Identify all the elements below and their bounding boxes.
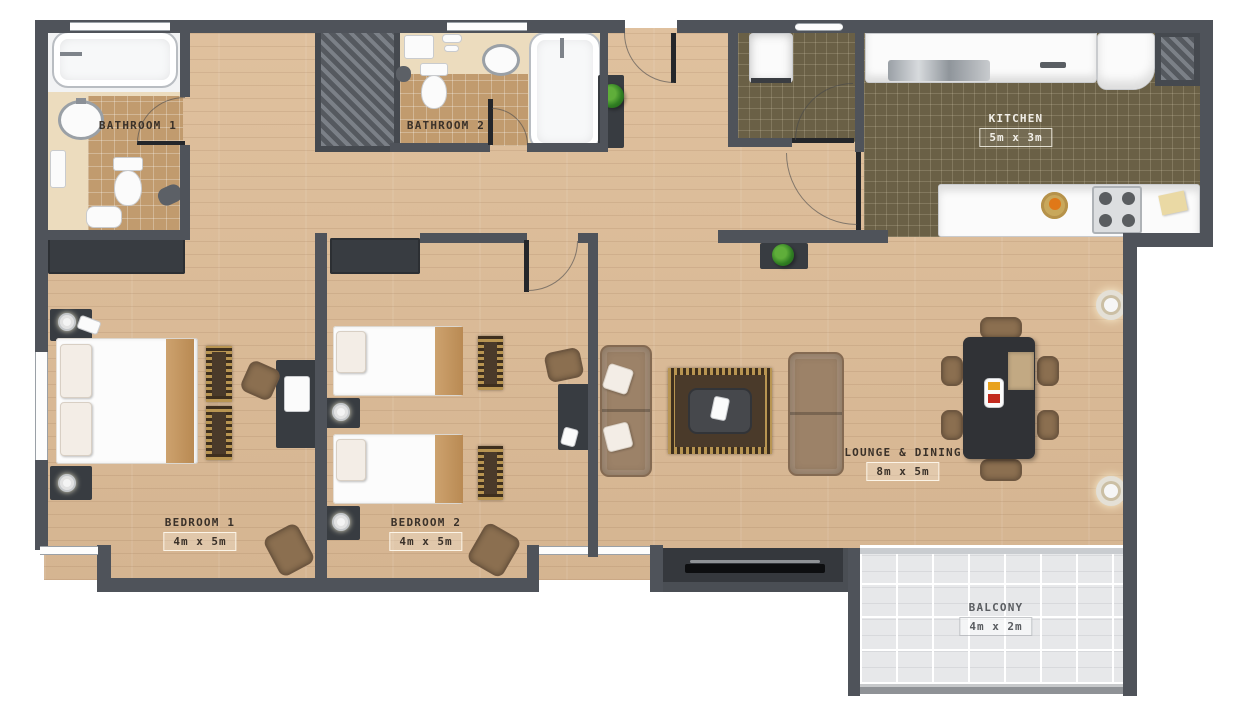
- wall: [420, 233, 527, 243]
- wall: [97, 578, 539, 592]
- wall: [180, 145, 190, 240]
- window: [70, 22, 170, 31]
- burner-4: [1122, 214, 1135, 227]
- wall: [588, 233, 598, 557]
- wall: [527, 143, 607, 152]
- food-item-b: [988, 394, 1000, 403]
- wall: [35, 20, 48, 550]
- closet-hatched: [315, 26, 400, 152]
- rug-1b: [206, 406, 232, 460]
- balcony-label: BALCONY: [969, 601, 1024, 614]
- rug-1a: [206, 346, 232, 402]
- wall: [718, 230, 888, 243]
- dining-chair-bottom: [980, 459, 1022, 481]
- tv-stand: [690, 560, 820, 563]
- window: [447, 22, 527, 31]
- wall: [527, 545, 539, 592]
- toilet-1-bowl: [114, 170, 142, 206]
- dining-chair-right-a: [1037, 356, 1059, 386]
- toilet-2-bowl: [421, 75, 447, 109]
- floor-plan: BATHROOM 1 BATHROOM 2 KITCHEN 5m x 3m: [0, 0, 1250, 720]
- balcony-sliding-door: [860, 545, 1123, 554]
- bathtub-1: [52, 31, 178, 88]
- food-item-a: [988, 382, 1000, 390]
- towel-roll-1: [442, 34, 462, 43]
- pillow-1a: [60, 344, 92, 398]
- sink-1: [58, 100, 104, 140]
- lamp-2b: [332, 513, 350, 531]
- bed-runner-2a: [435, 327, 463, 395]
- dining-chair-top: [980, 317, 1022, 339]
- bathtub-2: [529, 32, 601, 151]
- towel-dark-2: [396, 66, 411, 82]
- lounge-label: LOUNGE & DINING: [844, 446, 961, 459]
- balcony-dims: 4m x 2m: [959, 617, 1032, 636]
- wall: [650, 545, 663, 592]
- window: [539, 546, 588, 555]
- sofa-left-seam: [602, 409, 650, 412]
- wall: [35, 230, 190, 240]
- counter-handle: [1040, 62, 1066, 68]
- wall: [1200, 20, 1213, 247]
- lamp-1b: [58, 474, 76, 492]
- pillow-1b: [60, 402, 92, 456]
- kitchen-sink: [888, 60, 990, 81]
- bathtub-1-faucet: [60, 52, 82, 56]
- service-shaft-hatched: [1155, 31, 1200, 86]
- sofa-right-seam: [790, 412, 842, 415]
- bathroom1-shelf: [50, 150, 66, 188]
- wall-light-a: [1096, 290, 1126, 320]
- wall: [855, 28, 864, 152]
- wall: [390, 143, 490, 152]
- wardrobe-bedroom1: [48, 238, 185, 274]
- lamp-1a: [58, 313, 76, 331]
- lamp-2a: [332, 403, 350, 421]
- laptop-bedroom1: [284, 376, 310, 412]
- wall: [1123, 233, 1137, 696]
- burner-2: [1122, 192, 1135, 205]
- fruit-orange: [1049, 198, 1061, 210]
- lounge-dims: 8m x 5m: [866, 462, 939, 481]
- bed-runner-1: [166, 339, 194, 463]
- wall: [728, 28, 738, 147]
- wardrobe-bedroom2: [330, 238, 420, 274]
- towel-roll-2: [444, 45, 459, 52]
- sink-1-faucet: [76, 98, 86, 104]
- burner-3: [1099, 214, 1112, 227]
- plant-hall: [772, 244, 794, 266]
- dining-chair-left-a: [941, 356, 963, 386]
- bed-runner-2b: [435, 435, 463, 503]
- rug-2a: [478, 336, 503, 390]
- washing-machine-panel: [751, 78, 791, 83]
- kitchen-dims: 5m x 3m: [979, 128, 1052, 147]
- rug-2b: [478, 446, 503, 500]
- burner-1: [1099, 192, 1112, 205]
- window: [795, 23, 843, 31]
- bedroom2-label: BEDROOM 2: [391, 516, 461, 529]
- bathroom2-label: BATHROOM 2: [407, 119, 485, 132]
- pillow-2a: [336, 331, 366, 373]
- bathtub-2-faucet: [560, 38, 564, 58]
- wall: [848, 548, 860, 696]
- washing-machine: [749, 33, 793, 83]
- bedroom1-label: BEDROOM 1: [165, 516, 235, 529]
- bedroom1-dims: 4m x 5m: [163, 532, 236, 551]
- window: [598, 546, 650, 555]
- bathroom2-cabinet: [404, 35, 434, 59]
- dining-chair-right-b: [1037, 410, 1059, 440]
- wall-light-b: [1096, 476, 1126, 506]
- tv: [685, 564, 825, 573]
- kitchen-label: KITCHEN: [989, 112, 1044, 125]
- stove: [1092, 186, 1142, 234]
- fridge: [1097, 33, 1155, 90]
- wall: [315, 233, 327, 578]
- bath-mat-1: [86, 206, 122, 228]
- dining-board: [1008, 352, 1034, 390]
- window: [40, 546, 98, 555]
- bedroom2-dims: 4m x 5m: [389, 532, 462, 551]
- wall: [600, 28, 608, 152]
- toilet-1-tank: [113, 157, 143, 171]
- wall: [677, 20, 1213, 33]
- dining-chair-left-b: [941, 410, 963, 440]
- balcony-railing: [848, 684, 1137, 694]
- wall: [1137, 233, 1213, 247]
- wall: [180, 20, 190, 97]
- wall: [728, 138, 792, 147]
- pillow-2b: [336, 439, 366, 481]
- window: [35, 352, 48, 460]
- sink-2: [482, 44, 520, 76]
